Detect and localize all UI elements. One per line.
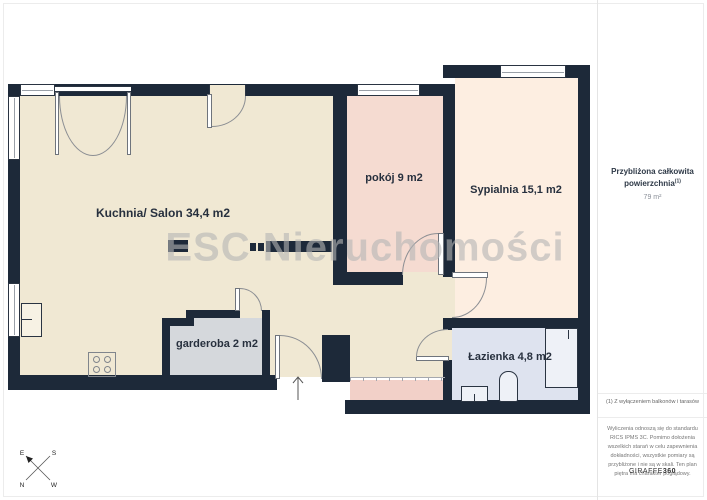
- stove-burner: [104, 366, 111, 373]
- french-door-leaf-right: [127, 92, 131, 155]
- watermark-text: ESC Nieruchomości: [165, 226, 564, 271]
- window-top-left: [20, 84, 55, 96]
- sink-divider: [474, 394, 475, 402]
- room-label-sypialnia: Sypialnia 15,1 m2: [470, 184, 562, 196]
- toilet: [499, 371, 518, 402]
- total-area-value: 79 m²: [598, 194, 707, 201]
- french-door-glass: [55, 86, 131, 92]
- compass-icon: E S N W: [14, 444, 62, 492]
- room-fill-garderoba-step: [192, 318, 262, 326]
- wall-right: [578, 65, 590, 414]
- stove-burner: [93, 366, 100, 373]
- wall-garderoba-right: [262, 310, 270, 377]
- window-left-upper: [8, 96, 20, 160]
- compass-n: N: [20, 482, 25, 489]
- wall-sypialnia-bottom: [443, 318, 590, 328]
- compass-e: E: [20, 450, 25, 457]
- wall-entrance-chunk: [322, 335, 350, 382]
- giraffe360-logo: GIRAFFE360: [598, 468, 707, 475]
- corridor-fill: [350, 380, 445, 402]
- brand-name: GIRAFFE: [629, 468, 663, 475]
- window-left-lower: [8, 283, 20, 337]
- entrance-arrow-icon: [288, 372, 308, 402]
- sidebar: Przybliżona całkowita powierzchnia(1) 79…: [598, 0, 707, 500]
- room-fill-garderoba: [170, 326, 262, 375]
- shower-valve: [568, 330, 569, 339]
- kitchen-counter-line: [21, 319, 32, 320]
- compass-w: W: [51, 482, 58, 489]
- wall-bottom: [8, 375, 277, 390]
- wall-garderoba-left: [162, 318, 170, 377]
- stove-burner: [104, 356, 111, 363]
- room-label-pokoj: pokój 9 m2: [365, 172, 422, 184]
- stove-burner: [93, 356, 100, 363]
- window-pokoj: [357, 84, 420, 96]
- room-label-salon: Kuchnia/ Salon 34,4 m2: [96, 206, 230, 220]
- doorway-garderoba: [240, 310, 262, 318]
- floorplan-canvas: ESC Nieruchomości Kuchnia/ Salon 34,4 m2…: [0, 0, 707, 500]
- kitchen-counter: [21, 303, 42, 337]
- wall-corridor-bottom: [345, 400, 590, 414]
- rule: [598, 417, 707, 418]
- corridor-threshold: [350, 377, 445, 381]
- window-sypialnia: [500, 65, 566, 78]
- compass-s: S: [52, 450, 57, 457]
- room-label-lazienka: Łazienka 4,8 m2: [468, 351, 552, 363]
- rule: [598, 393, 707, 394]
- stove: [88, 352, 116, 377]
- total-area-label: Przybliżona całkowita powierzchnia(1): [598, 166, 707, 189]
- footnote: (1) Z wyłączeniem balkonów i tarasów: [598, 399, 707, 405]
- brand-suffix: 360: [663, 468, 676, 475]
- total-area-line1: Przybliżona całkowita: [611, 167, 694, 176]
- total-area-line2: powierzchnia: [624, 179, 675, 188]
- room-label-garderoba: garderoba 2 m2: [176, 338, 258, 350]
- doorway-salon-top: [209, 85, 246, 96]
- wall-garderoba-top: [186, 310, 242, 318]
- total-area-superscript: (1): [675, 178, 681, 184]
